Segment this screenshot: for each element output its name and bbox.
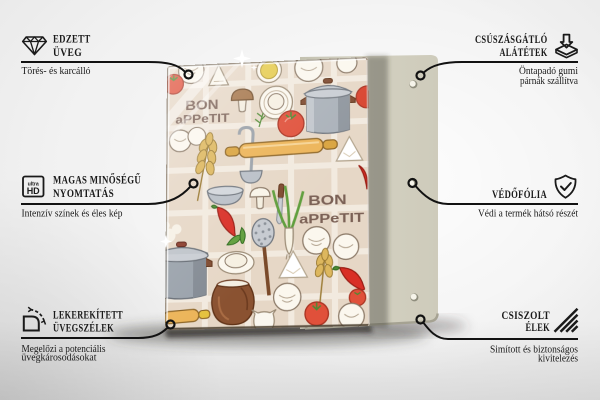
svg-text:NYOMTATÁS: NYOMTATÁS (53, 186, 114, 200)
svg-text:MAGAS MINŐSÉGŰ: MAGAS MINŐSÉGŰ (53, 172, 141, 187)
svg-text:ÉLEK: ÉLEK (526, 320, 551, 334)
svg-text:Védi a termék hátsó részét: Védi a termék hátsó részét (478, 208, 578, 220)
svg-text:kivitelezés: kivitelezés (538, 353, 578, 365)
svg-text:üvegkárosodásokat: üvegkárosodásokat (22, 352, 97, 364)
svg-text:Intenzív színek és éles kép: Intenzív színek és éles kép (22, 208, 123, 220)
svg-text:CSÚSZÁSGÁTLÓ: CSÚSZÁSGÁTLÓ (475, 32, 548, 46)
svg-text:ÜVEG: ÜVEG (53, 45, 82, 59)
svg-text:CSISZOLT: CSISZOLT (502, 310, 551, 322)
svg-text:HD: HD (27, 186, 40, 196)
svg-text:VÉDŐFÓLIA: VÉDŐFÓLIA (492, 186, 547, 201)
svg-text:LEKEREKÍTETT: LEKEREKÍTETT (53, 308, 123, 322)
svg-text:ÜVEGSZÉLEK: ÜVEGSZÉLEK (53, 321, 114, 335)
svg-text:párnák szállítva: párnák szállítva (520, 75, 578, 87)
svg-text:EDZETT: EDZETT (53, 34, 91, 46)
svg-text:Törés- és karcálló: Törés- és karcálló (22, 65, 91, 77)
svg-text:ALÁTÉTEK: ALÁTÉTEK (500, 45, 548, 59)
